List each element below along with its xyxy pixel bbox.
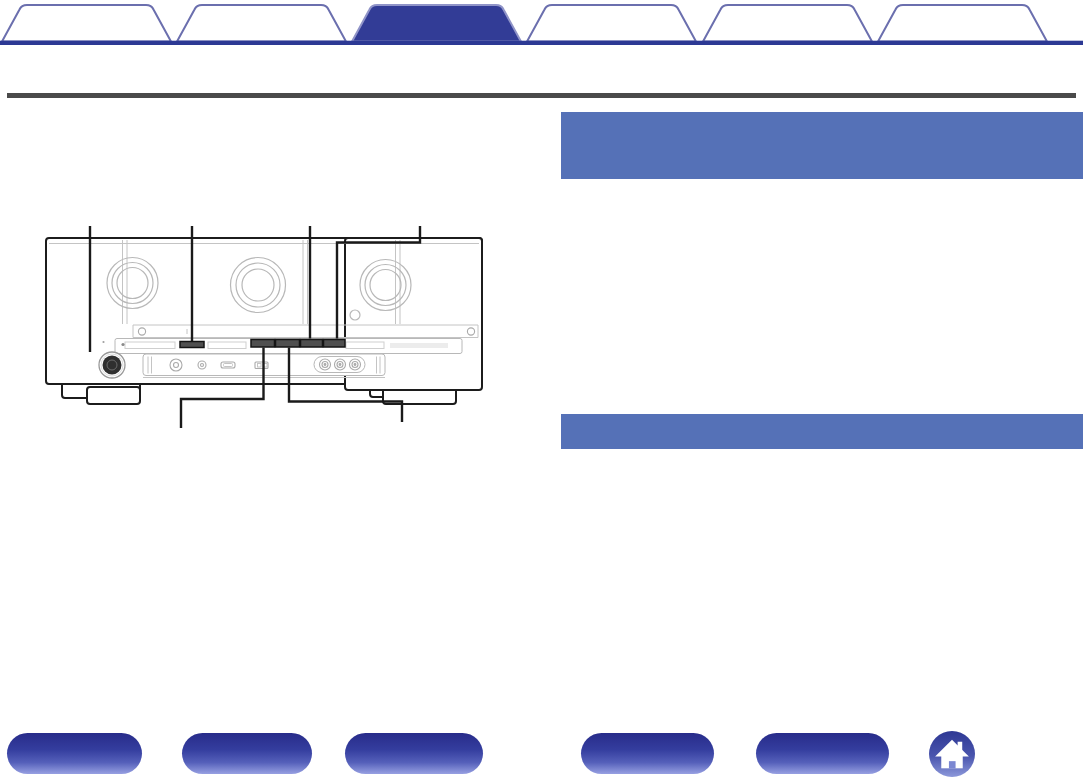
front-panel-diagram: [40, 215, 520, 440]
nav-button-5[interactable]: [756, 733, 889, 774]
tab-6[interactable]: [878, 5, 1047, 42]
tab-bar: [0, 0, 1083, 46]
section-heading-primary: [561, 112, 1083, 179]
tab-4[interactable]: [527, 5, 696, 42]
display-button-mid: [301, 340, 323, 348]
nav-button-4[interactable]: [581, 733, 714, 774]
home-button[interactable]: [929, 731, 975, 777]
lower-button-left-target: [251, 340, 275, 348]
nav-button-1[interactable]: [7, 733, 142, 774]
section-heading-secondary: [561, 414, 1083, 449]
home-icon: [929, 731, 975, 777]
manual-page: [0, 0, 1083, 779]
nav-button-2[interactable]: [182, 733, 312, 774]
tab-5[interactable]: [703, 5, 872, 42]
tab-3-active[interactable]: [352, 5, 521, 42]
tab-2[interactable]: [177, 5, 346, 42]
lower-button-right-target: [276, 340, 300, 348]
tab-1[interactable]: [2, 5, 171, 42]
tab-baseline: [0, 41, 1083, 45]
section-divider: [7, 93, 1076, 98]
display-button-right: [324, 340, 346, 348]
nav-button-3[interactable]: [345, 733, 483, 774]
display-button-left: [180, 342, 204, 348]
